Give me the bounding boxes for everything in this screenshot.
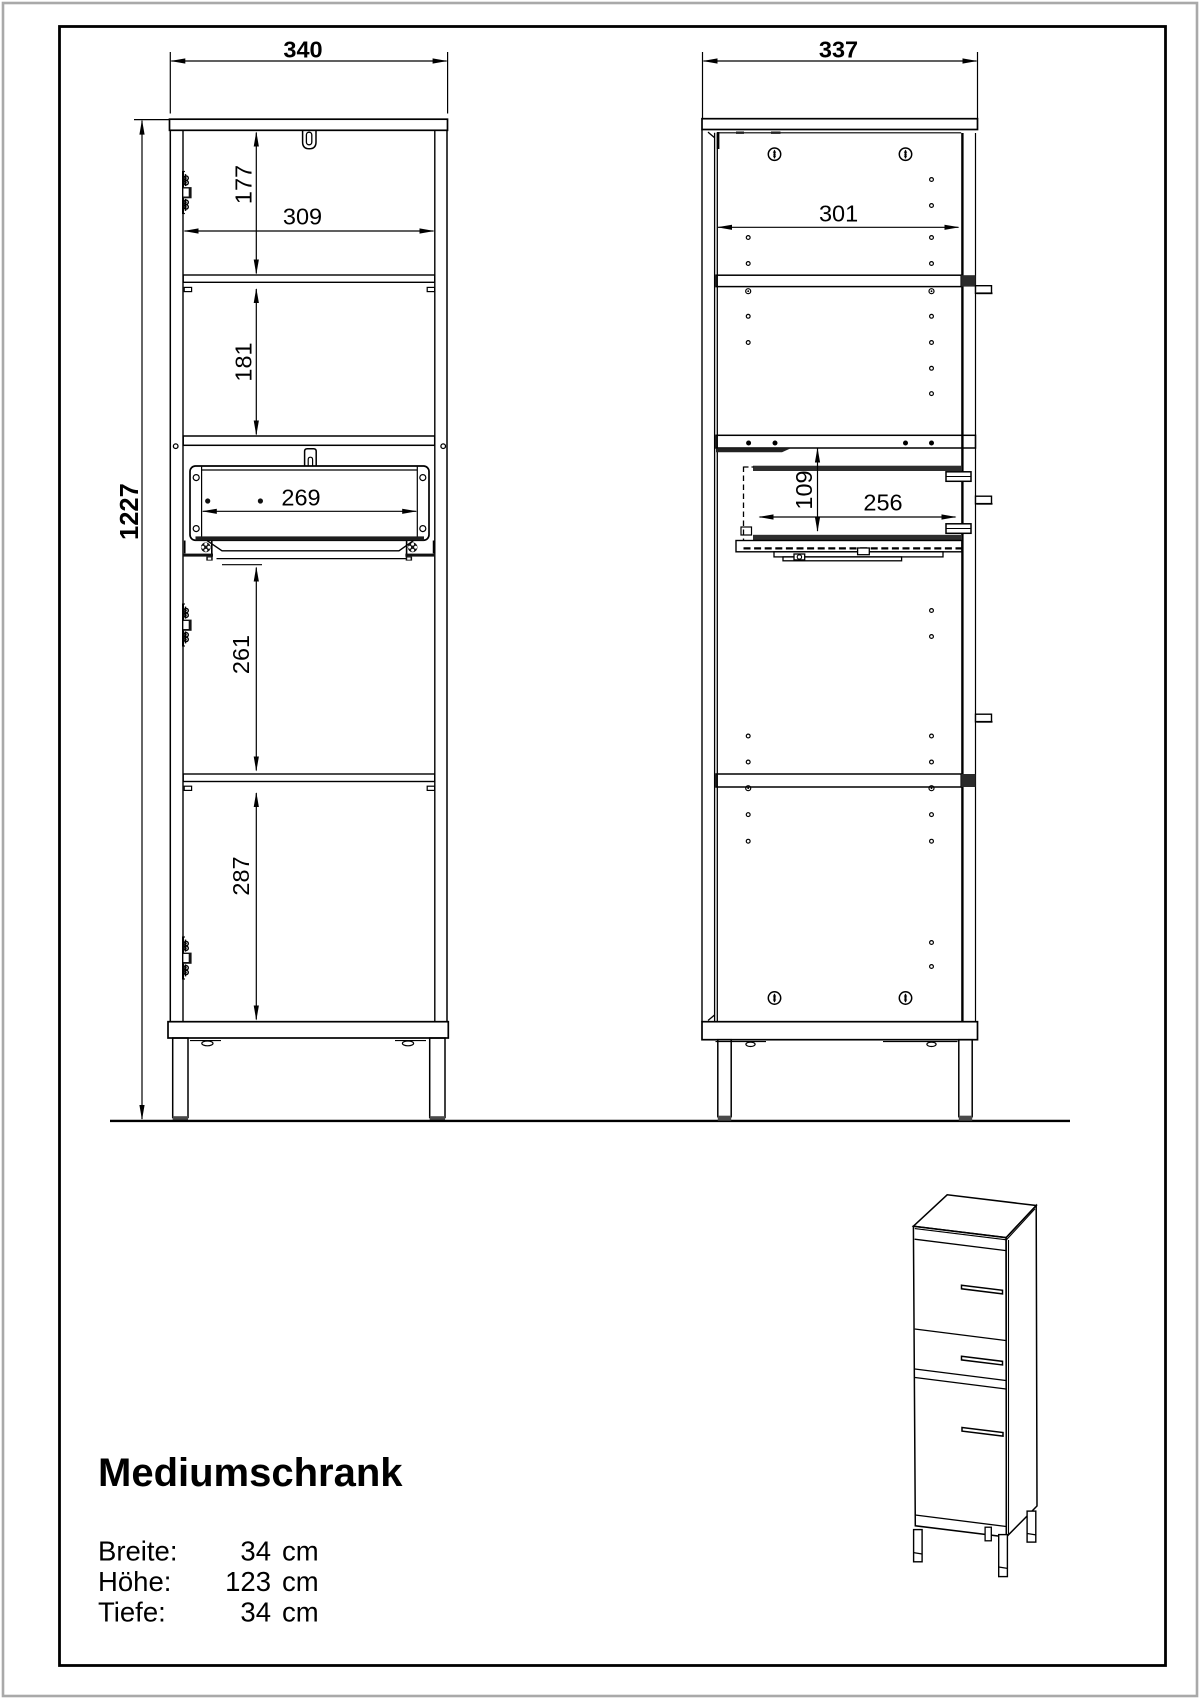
svg-text:1227: 1227 bbox=[116, 483, 144, 540]
svg-text:123: 123 bbox=[225, 1566, 271, 1597]
svg-text:269: 269 bbox=[281, 485, 320, 511]
svg-text:34: 34 bbox=[240, 1597, 271, 1628]
svg-text:287: 287 bbox=[228, 856, 254, 895]
svg-text:256: 256 bbox=[863, 490, 902, 516]
svg-text:cm: cm bbox=[282, 1566, 319, 1597]
svg-text:34: 34 bbox=[240, 1536, 271, 1567]
svg-text:Höhe:: Höhe: bbox=[98, 1566, 171, 1597]
svg-text:109: 109 bbox=[791, 470, 817, 509]
svg-text:309: 309 bbox=[283, 204, 322, 230]
svg-text:Tiefe:: Tiefe: bbox=[98, 1597, 166, 1628]
svg-text:181: 181 bbox=[231, 342, 257, 381]
svg-text:cm: cm bbox=[282, 1536, 319, 1567]
svg-text:261: 261 bbox=[228, 635, 254, 674]
svg-text:Breite:: Breite: bbox=[98, 1536, 177, 1567]
svg-text:cm: cm bbox=[282, 1597, 319, 1628]
svg-text:340: 340 bbox=[283, 36, 322, 62]
svg-text:Mediumschrank: Mediumschrank bbox=[98, 1451, 403, 1495]
svg-text:337: 337 bbox=[819, 36, 858, 62]
svg-text:301: 301 bbox=[819, 201, 858, 227]
svg-text:177: 177 bbox=[231, 165, 257, 204]
